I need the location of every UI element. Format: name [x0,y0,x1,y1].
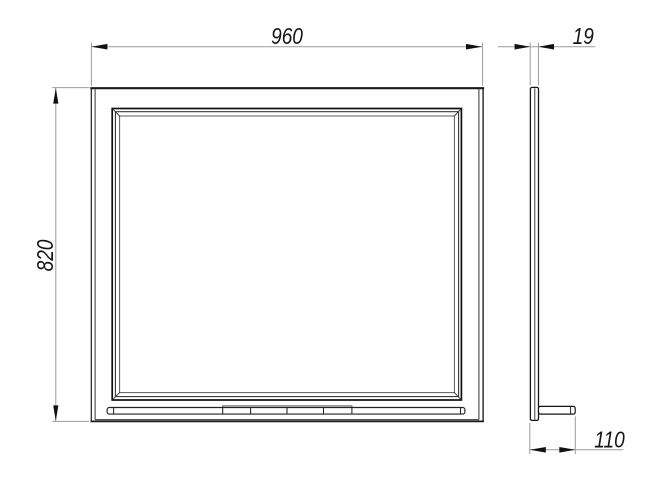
svg-text:19: 19 [573,24,594,49]
svg-text:820: 820 [34,239,59,271]
svg-text:960: 960 [271,24,303,49]
svg-text:110: 110 [594,428,625,453]
